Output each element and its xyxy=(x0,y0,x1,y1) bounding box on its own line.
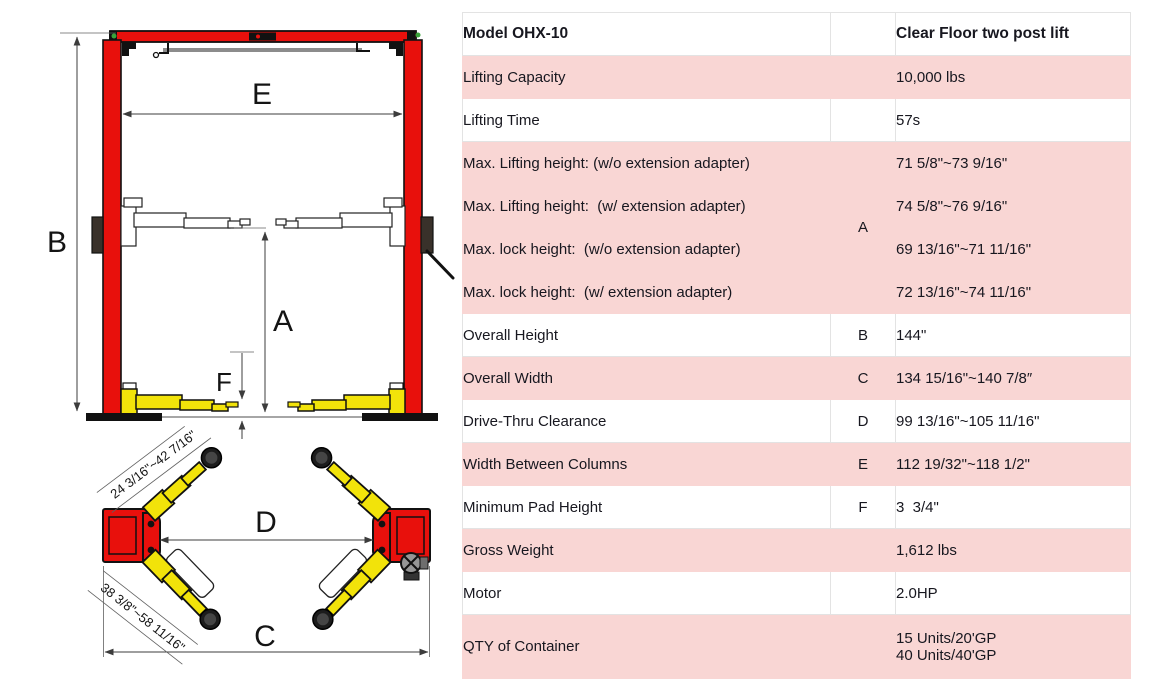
spec-label: Max. Lifting height: (w/o extension adap… xyxy=(463,142,831,185)
table-row: Motor2.0HP xyxy=(463,572,1131,615)
spec-label: Max. lock height: (w/o extension adapter… xyxy=(463,228,831,271)
spec-value: 10,000 lbs xyxy=(896,56,1131,99)
spec-value: 2.0HP xyxy=(896,572,1131,615)
hydraulic-valve xyxy=(401,553,428,580)
spec-value: 3 3/4" xyxy=(896,486,1131,529)
spec-letter: F xyxy=(831,486,896,529)
spec-letter: D xyxy=(831,400,896,443)
spec-value: 134 15/16"~140 7/8″ xyxy=(896,357,1131,400)
table-row: Drive-Thru ClearanceD99 13/16"~105 11/16… xyxy=(463,400,1131,443)
raised-arm-left xyxy=(121,198,250,246)
dim-label-F: F xyxy=(216,367,232,397)
spec-letter: A xyxy=(831,142,896,314)
spec-letter xyxy=(831,529,896,572)
table-row: Minimum Pad HeightF3 3/4" xyxy=(463,486,1131,529)
dim-label-C: C xyxy=(254,620,276,653)
spec-letter xyxy=(831,615,896,679)
spec-value: 112 19/32"~118 1/2" xyxy=(896,443,1131,486)
spec-value: 15 Units/20'GP 40 Units/40'GP xyxy=(896,615,1131,679)
header-letter-cell xyxy=(831,13,896,56)
raised-arm-right xyxy=(276,198,405,246)
spec-value: 144" xyxy=(896,314,1131,357)
left-column xyxy=(103,40,121,415)
spec-label: Overall Height xyxy=(463,314,831,357)
table-row: Width Between ColumnsE112 19/32"~118 1/2… xyxy=(463,443,1131,486)
spec-letter: E xyxy=(831,443,896,486)
spec-label: Gross Weight xyxy=(463,529,831,572)
spec-label: Minimum Pad Height xyxy=(463,486,831,529)
power-cable xyxy=(427,251,453,278)
spec-value: 72 13/16"~74 11/16" xyxy=(896,271,1131,314)
table-row: Max. lock height: (w/ extension adapter)… xyxy=(463,271,1131,314)
table-row: Overall WidthC134 15/16"~140 7/8″ xyxy=(463,357,1131,400)
table-row: Overall HeightB144" xyxy=(463,314,1131,357)
power-unit xyxy=(421,217,433,253)
lift-type-title: Clear Floor two post lift xyxy=(896,13,1131,56)
spec-letter: B xyxy=(831,314,896,357)
spec-table: Model OHX-10 Clear Floor two post lift L… xyxy=(462,12,1131,679)
model-title: Model OHX-10 xyxy=(463,13,831,56)
table-row: Lifting Capacity10,000 lbs xyxy=(463,56,1131,99)
table-header-row: Model OHX-10 Clear Floor two post lift xyxy=(463,13,1131,56)
spec-label: QTY of Container xyxy=(463,615,831,679)
spec-value: 57s xyxy=(896,99,1131,142)
spec-letter xyxy=(831,572,896,615)
lift-diagram-container: B E A F xyxy=(0,0,460,690)
front-view: B E A F xyxy=(47,31,453,439)
spec-label: Lifting Capacity xyxy=(463,56,831,99)
spec-value: 74 5/8"~76 9/16" xyxy=(896,185,1131,228)
spec-label: Max. Lifting height: (w/ extension adapt… xyxy=(463,185,831,228)
spec-value: 69 13/16"~71 11/16" xyxy=(896,228,1131,271)
spec-value: 71 5/8"~73 9/16" xyxy=(896,142,1131,185)
table-row: Max. Lifting height: (w/ extension adapt… xyxy=(463,185,1131,228)
table-row: Lifting Time57s xyxy=(463,99,1131,142)
spec-value: 1,612 lbs xyxy=(896,529,1131,572)
spec-value: 99 13/16"~105 11/16" xyxy=(896,400,1131,443)
dim-label-E: E xyxy=(252,78,272,111)
dim-label-D: D xyxy=(255,506,277,539)
table-row: Max. Lifting height: (w/o extension adap… xyxy=(463,142,1131,185)
left-side-cover xyxy=(92,217,103,253)
spec-label: Lifting Time xyxy=(463,99,831,142)
spec-letter xyxy=(831,99,896,142)
spec-sheet-page: B E A F xyxy=(0,0,1155,690)
spec-label: Width Between Columns xyxy=(463,443,831,486)
table-row: Max. lock height: (w/o extension adapter… xyxy=(463,228,1131,271)
dim-label-A: A xyxy=(273,305,293,338)
lift-diagram: B E A F xyxy=(0,0,460,690)
table-row: QTY of Container15 Units/20'GP 40 Units/… xyxy=(463,615,1131,679)
spec-label: Overall Width xyxy=(463,357,831,400)
spec-label: Max. lock height: (w/ extension adapter) xyxy=(463,271,831,314)
spec-label: Motor xyxy=(463,572,831,615)
table-row: Gross Weight1,612 lbs xyxy=(463,529,1131,572)
lowered-arm-right xyxy=(288,383,405,414)
spec-table-body: Lifting Capacity10,000 lbsLifting Time57… xyxy=(463,56,1131,679)
right-column xyxy=(404,40,422,415)
top-view: D C 24 3/16"~42 7/16" 38 3/8"~58 11/16" xyxy=(88,418,430,664)
dim-label-B: B xyxy=(47,226,67,259)
spec-letter xyxy=(831,56,896,99)
swing-arm-front-right xyxy=(307,444,390,522)
spec-letter: C xyxy=(831,357,896,400)
swing-arm-rear-right xyxy=(297,537,392,633)
spec-label: Drive-Thru Clearance xyxy=(463,400,831,443)
